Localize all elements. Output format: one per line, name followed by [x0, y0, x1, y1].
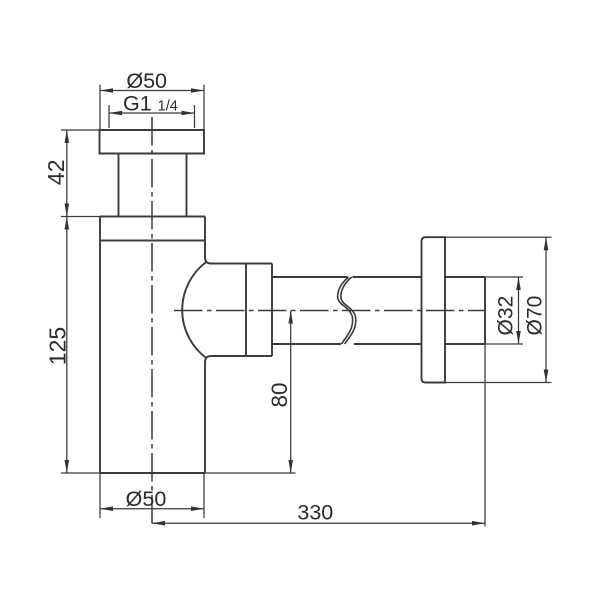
svg-text:Ø32: Ø32 [494, 296, 517, 336]
svg-text:330: 330 [297, 501, 333, 525]
svg-text:125: 125 [44, 327, 70, 365]
svg-text:Ø70: Ø70 [523, 296, 546, 336]
svg-text:G1 1/4: G1 1/4 [123, 92, 178, 116]
svg-text:Ø50: Ø50 [126, 487, 167, 511]
svg-text:80: 80 [267, 382, 292, 407]
svg-text:42: 42 [43, 160, 69, 186]
svg-text:Ø50: Ø50 [126, 69, 167, 93]
